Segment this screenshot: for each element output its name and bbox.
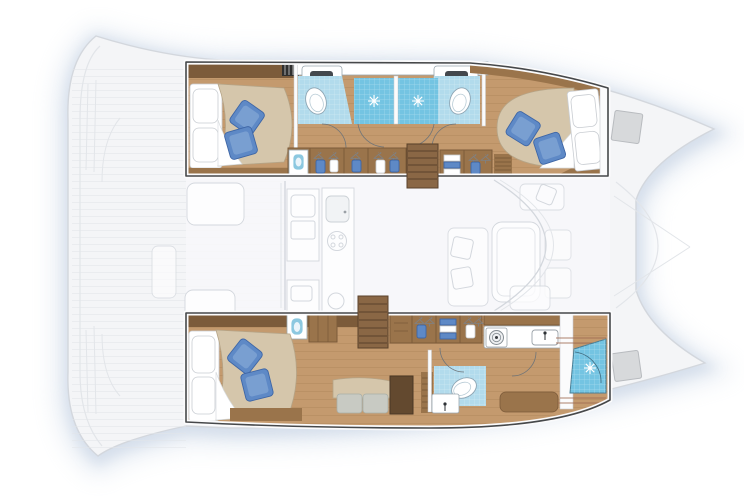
catamaran-floor-plan: [0, 0, 744, 496]
white-pillow: [192, 336, 215, 373]
bathroom-wall: [428, 350, 432, 412]
folded-towel-blue: [444, 162, 460, 168]
starboard-hull-interior: [186, 296, 610, 428]
folded-towel-white: [444, 169, 460, 174]
galley-sink-main: [326, 196, 349, 222]
fwd-seat: [510, 286, 550, 310]
hanging-garment-white: [466, 325, 475, 338]
port-companionway-stairs: [407, 144, 438, 188]
folded-towel-white: [440, 326, 456, 332]
settee-cushion: [337, 394, 362, 413]
hanging-garment-blue: [316, 160, 325, 173]
basin-bowl: [296, 158, 302, 167]
bulkhead-wall: [294, 62, 298, 150]
bed-foot-trim: [230, 408, 302, 421]
white-pillow: [574, 131, 601, 165]
saloon-seat: [545, 230, 571, 260]
folded-towel-white: [444, 155, 460, 161]
vent-step: [494, 154, 512, 176]
blue-pillow: [240, 368, 274, 402]
white-pillow: [193, 128, 218, 162]
dressing-bench: [500, 392, 558, 412]
white-pillow: [192, 377, 215, 414]
shower-bulkhead: [560, 313, 573, 409]
galley-counter-fwd: [287, 280, 319, 312]
hanging-garment-white: [330, 160, 338, 172]
cockpit-bench: [152, 246, 176, 298]
folded-towel-blue: [440, 333, 456, 339]
desk: [390, 376, 413, 414]
hanging-garment-blue: [390, 160, 399, 172]
galley-faucet: [344, 211, 347, 214]
washer-hub: [495, 336, 498, 339]
foredeck-hatch-starboard: [611, 350, 642, 381]
hanging-garment-blue: [417, 325, 426, 338]
white-pillow: [193, 89, 218, 123]
basin-bowl: [294, 322, 300, 332]
starboard-companionway-stairs: [358, 296, 388, 348]
settee-cushion: [363, 394, 388, 413]
folded-towel-blue: [440, 319, 456, 325]
foredeck-hatch-port: [611, 110, 643, 144]
port-wardrobes: [288, 148, 512, 177]
port-hull-interior: [186, 62, 609, 188]
galley-counter-aft: [287, 189, 319, 261]
cabin-wardrobe-box: [309, 315, 337, 342]
white-pillow: [570, 94, 597, 128]
floor-plan-canvas: [0, 0, 744, 496]
cockpit-table-upper: [187, 183, 244, 225]
hanging-garment-white: [376, 160, 385, 173]
hanging-garment-blue: [471, 162, 480, 174]
hanging-garment-blue: [352, 160, 361, 172]
shower-divider-wall: [394, 76, 398, 124]
